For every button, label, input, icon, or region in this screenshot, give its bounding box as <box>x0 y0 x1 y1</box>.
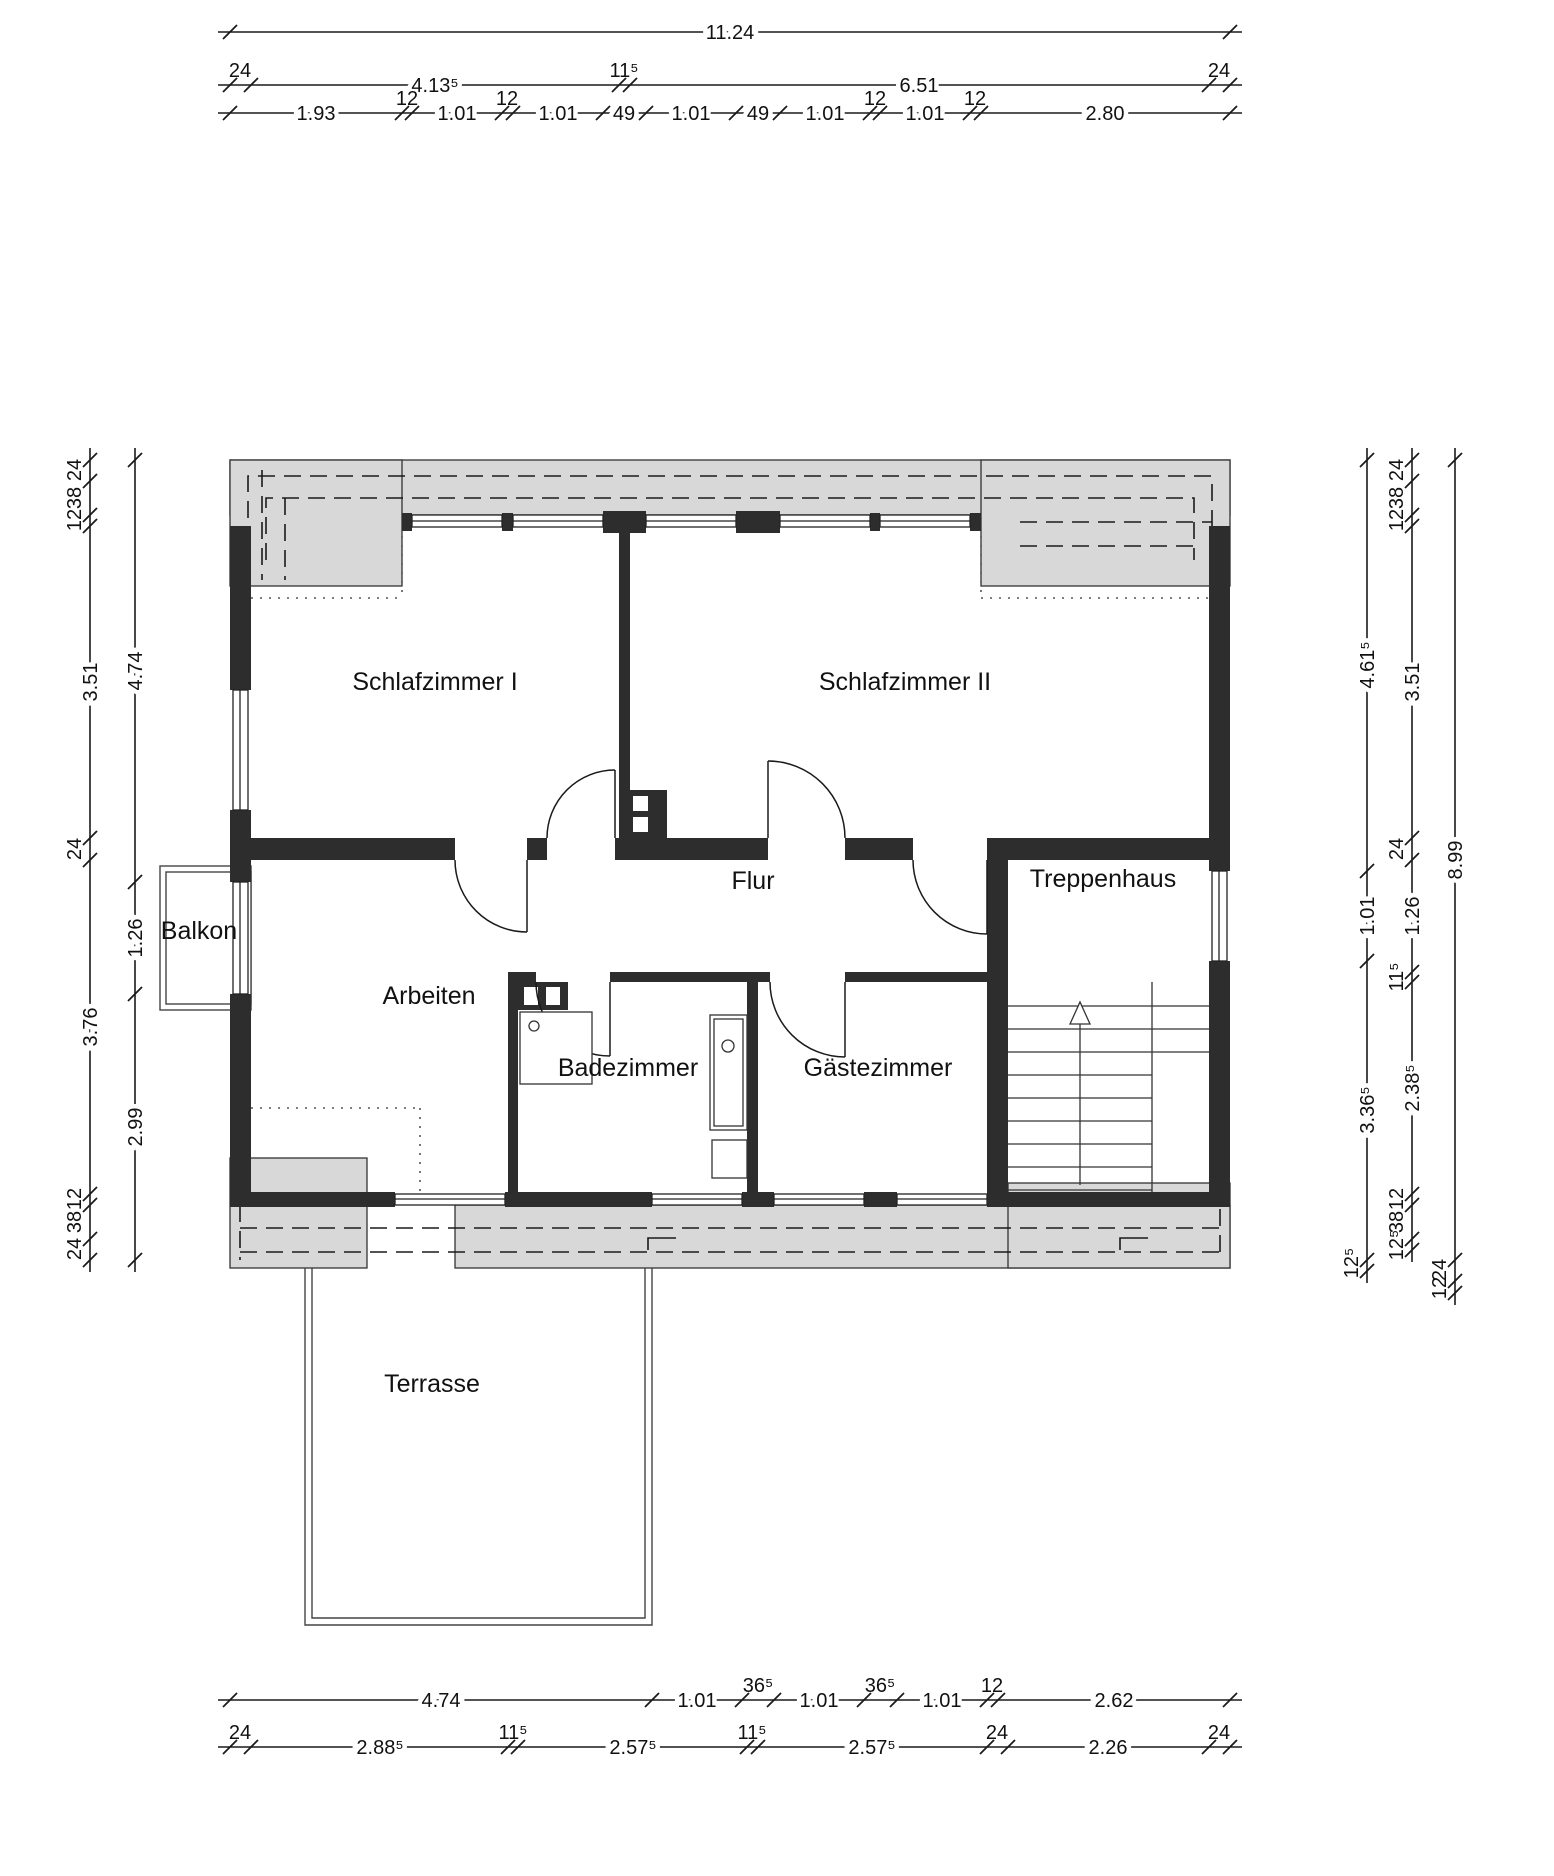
dim-label: 2.38⁵ <box>1402 1064 1424 1111</box>
dim-label: 12 <box>981 1675 1003 1697</box>
room-label-gaestezimmer: Gästezimmer <box>804 1054 953 1082</box>
dim-label: 38 <box>64 487 86 509</box>
dim-label: 24 <box>986 1722 1008 1744</box>
dim-label: 11⁵ <box>737 1722 766 1744</box>
dim-label: 3.51 <box>1402 663 1424 702</box>
dim-label: 24 <box>64 1238 86 1260</box>
dim-label: 2.62 <box>1095 1690 1134 1712</box>
dim-label: 12 <box>396 88 418 110</box>
dim-label: 24 <box>64 459 86 481</box>
dim-label: 24 <box>1208 1722 1230 1744</box>
floor-plan-page: Schlafzimmer ISchlafzimmer IIFlurTreppen… <box>0 0 1554 1876</box>
dim-label: 8.99 <box>1445 841 1467 880</box>
dim-label: 1.26 <box>1402 897 1424 936</box>
dim-label: 1.01 <box>678 1690 717 1712</box>
dim-label: 11.24 <box>706 22 755 44</box>
east-window-treppenhaus <box>1212 871 1227 961</box>
dim-chain-bottom-main: 242.88⁵11⁵2.57⁵11⁵2.57⁵242.2624 <box>218 1722 1242 1759</box>
dim-label: 1.01 <box>438 103 477 125</box>
dim-label: 12 <box>864 88 886 110</box>
dim-label: 4.74 <box>422 1690 461 1712</box>
dim-label: 38 <box>64 1211 86 1233</box>
door-arbeiten <box>455 860 527 932</box>
dim-label: 2.88⁵ <box>356 1737 403 1759</box>
dim-label: 1.01 <box>539 103 578 125</box>
dim-label: 12 <box>964 88 986 110</box>
stairs <box>1008 982 1209 1194</box>
dim-chain-right-overall: 8.992412 <box>1429 448 1467 1305</box>
terrasse-outline <box>305 1268 652 1625</box>
wc <box>712 1140 747 1178</box>
dim-label: 24 <box>1386 459 1408 481</box>
dim-label: 12 <box>1386 509 1408 531</box>
dim-label: 2.57⁵ <box>848 1737 895 1759</box>
dim-label: 12⁵ <box>1341 1248 1363 1279</box>
room-label-schlafzimmer-2: Schlafzimmer II <box>819 668 991 696</box>
south-terrace-door <box>395 1194 505 1205</box>
dim-label: 3.76 <box>80 1008 102 1047</box>
bathroom-fixtures <box>520 1012 747 1178</box>
dim-label: 24 <box>229 1722 251 1744</box>
dim-label: 1.01 <box>923 1690 962 1712</box>
dim-label: 1.01 <box>672 103 711 125</box>
room-label-flur: Flur <box>731 867 774 895</box>
dim-label: 2.57⁵ <box>609 1737 656 1759</box>
south-window-2 <box>774 1194 864 1205</box>
west-window-schlafzimmer1 <box>233 690 248 810</box>
dim-label: 24 <box>64 838 86 860</box>
shower-drain <box>529 1021 539 1031</box>
generated-labels: Schlafzimmer ISchlafzimmer IIFlurTreppen… <box>64 22 1467 1759</box>
north-window-2 <box>513 515 603 527</box>
door-schlafzimmer1 <box>547 770 615 838</box>
dim-label: 24 <box>229 60 251 82</box>
roof-northeast-block <box>981 460 1230 586</box>
dim-label: 2.99 <box>125 1108 147 1147</box>
bathtub-drain <box>722 1040 734 1052</box>
dim-label: 1.93 <box>297 103 336 125</box>
dim-chain-right-mid: 2438123.51241.2611⁵2.38⁵123812⁵ <box>1386 448 1424 1262</box>
dim-label: 3.36⁵ <box>1357 1086 1379 1133</box>
bathtub <box>710 1015 747 1130</box>
dim-label: 6.51 <box>900 75 939 97</box>
room-label-schlafzimmer-1: Schlafzimmer I <box>352 668 517 696</box>
dim-label: 24 <box>1208 60 1230 82</box>
north-window-5 <box>880 515 970 527</box>
duct-flue-2 <box>546 987 560 1005</box>
dim-label: 38 <box>1386 487 1408 509</box>
room-label-terrasse: Terrasse <box>384 1370 480 1398</box>
roof-northwest-block <box>230 460 402 586</box>
dim-label: 12⁵ <box>1386 1230 1408 1261</box>
dim-chain-left-outer: 2438123.51243.76123824 <box>64 448 102 1272</box>
dim-label: 11⁵ <box>1386 962 1408 991</box>
dim-label: 11⁵ <box>498 1722 527 1744</box>
room-label-badezimmer: Badezimmer <box>558 1054 698 1082</box>
dim-label: 24 <box>1386 838 1408 860</box>
dim-label: 12 <box>496 88 518 110</box>
dim-label: 49 <box>613 103 635 125</box>
north-window-3 <box>646 515 736 527</box>
dim-label: 36⁵ <box>865 1675 896 1697</box>
room-label-treppenhaus: Treppenhaus <box>1030 865 1176 893</box>
dim-label: 49 <box>747 103 769 125</box>
dim-label: 3.51 <box>80 663 102 702</box>
room-label-arbeiten: Arbeiten <box>382 982 475 1010</box>
dim-chain-top-overall: 11.24 <box>218 22 1242 44</box>
door-gaestezimmer <box>770 982 845 1057</box>
dim-label: 4.61⁵ <box>1357 641 1379 688</box>
dim-chain-top-windows: 1.93121.01121.01491.01491.01121.01122.80 <box>218 88 1242 125</box>
chimney-flue-1 <box>633 796 648 811</box>
dim-label: 11⁵ <box>609 60 638 82</box>
dim-label: 12 <box>64 509 86 531</box>
dim-label: 1.01 <box>800 1690 839 1712</box>
north-window-1 <box>412 515 502 527</box>
chimney-flue-2 <box>633 817 648 832</box>
door-treppenhaus <box>913 860 987 934</box>
dim-label: 12 <box>1429 1277 1451 1299</box>
dim-label: 4.74 <box>125 652 147 691</box>
south-window-1 <box>652 1194 742 1205</box>
dim-label: 1.01 <box>906 103 945 125</box>
room-label-balkon: Balkon <box>161 917 237 945</box>
dim-chain-top-main: 244.13⁵11⁵6.5124 <box>218 60 1242 97</box>
dim-label: 12 <box>1386 1188 1408 1210</box>
door-schlafzimmer2 <box>768 761 845 838</box>
dim-label: 2.26 <box>1089 1737 1128 1759</box>
north-window-4 <box>780 515 870 527</box>
floor-plan-drawing: Schlafzimmer ISchlafzimmer IIFlurTreppen… <box>0 0 1554 1876</box>
dim-label: 1.01 <box>806 103 845 125</box>
dim-chain-bottom-windows: 4.741.0136⁵1.0136⁵1.01122.62 <box>218 1675 1242 1712</box>
dim-label: 12 <box>64 1188 86 1210</box>
dim-label: 2.80 <box>1086 103 1125 125</box>
dim-label: 36⁵ <box>743 1675 774 1697</box>
dim-label: 1.26 <box>125 919 147 958</box>
dim-label: 4.13⁵ <box>411 75 458 97</box>
dim-label: 1.01 <box>1357 897 1379 936</box>
south-window-3 <box>897 1194 987 1205</box>
dim-chain-left-inner: 4.741.262.99 <box>125 448 147 1272</box>
dim-chain-right-inner: 4.61⁵1.013.36⁵12⁵ <box>1341 448 1379 1283</box>
